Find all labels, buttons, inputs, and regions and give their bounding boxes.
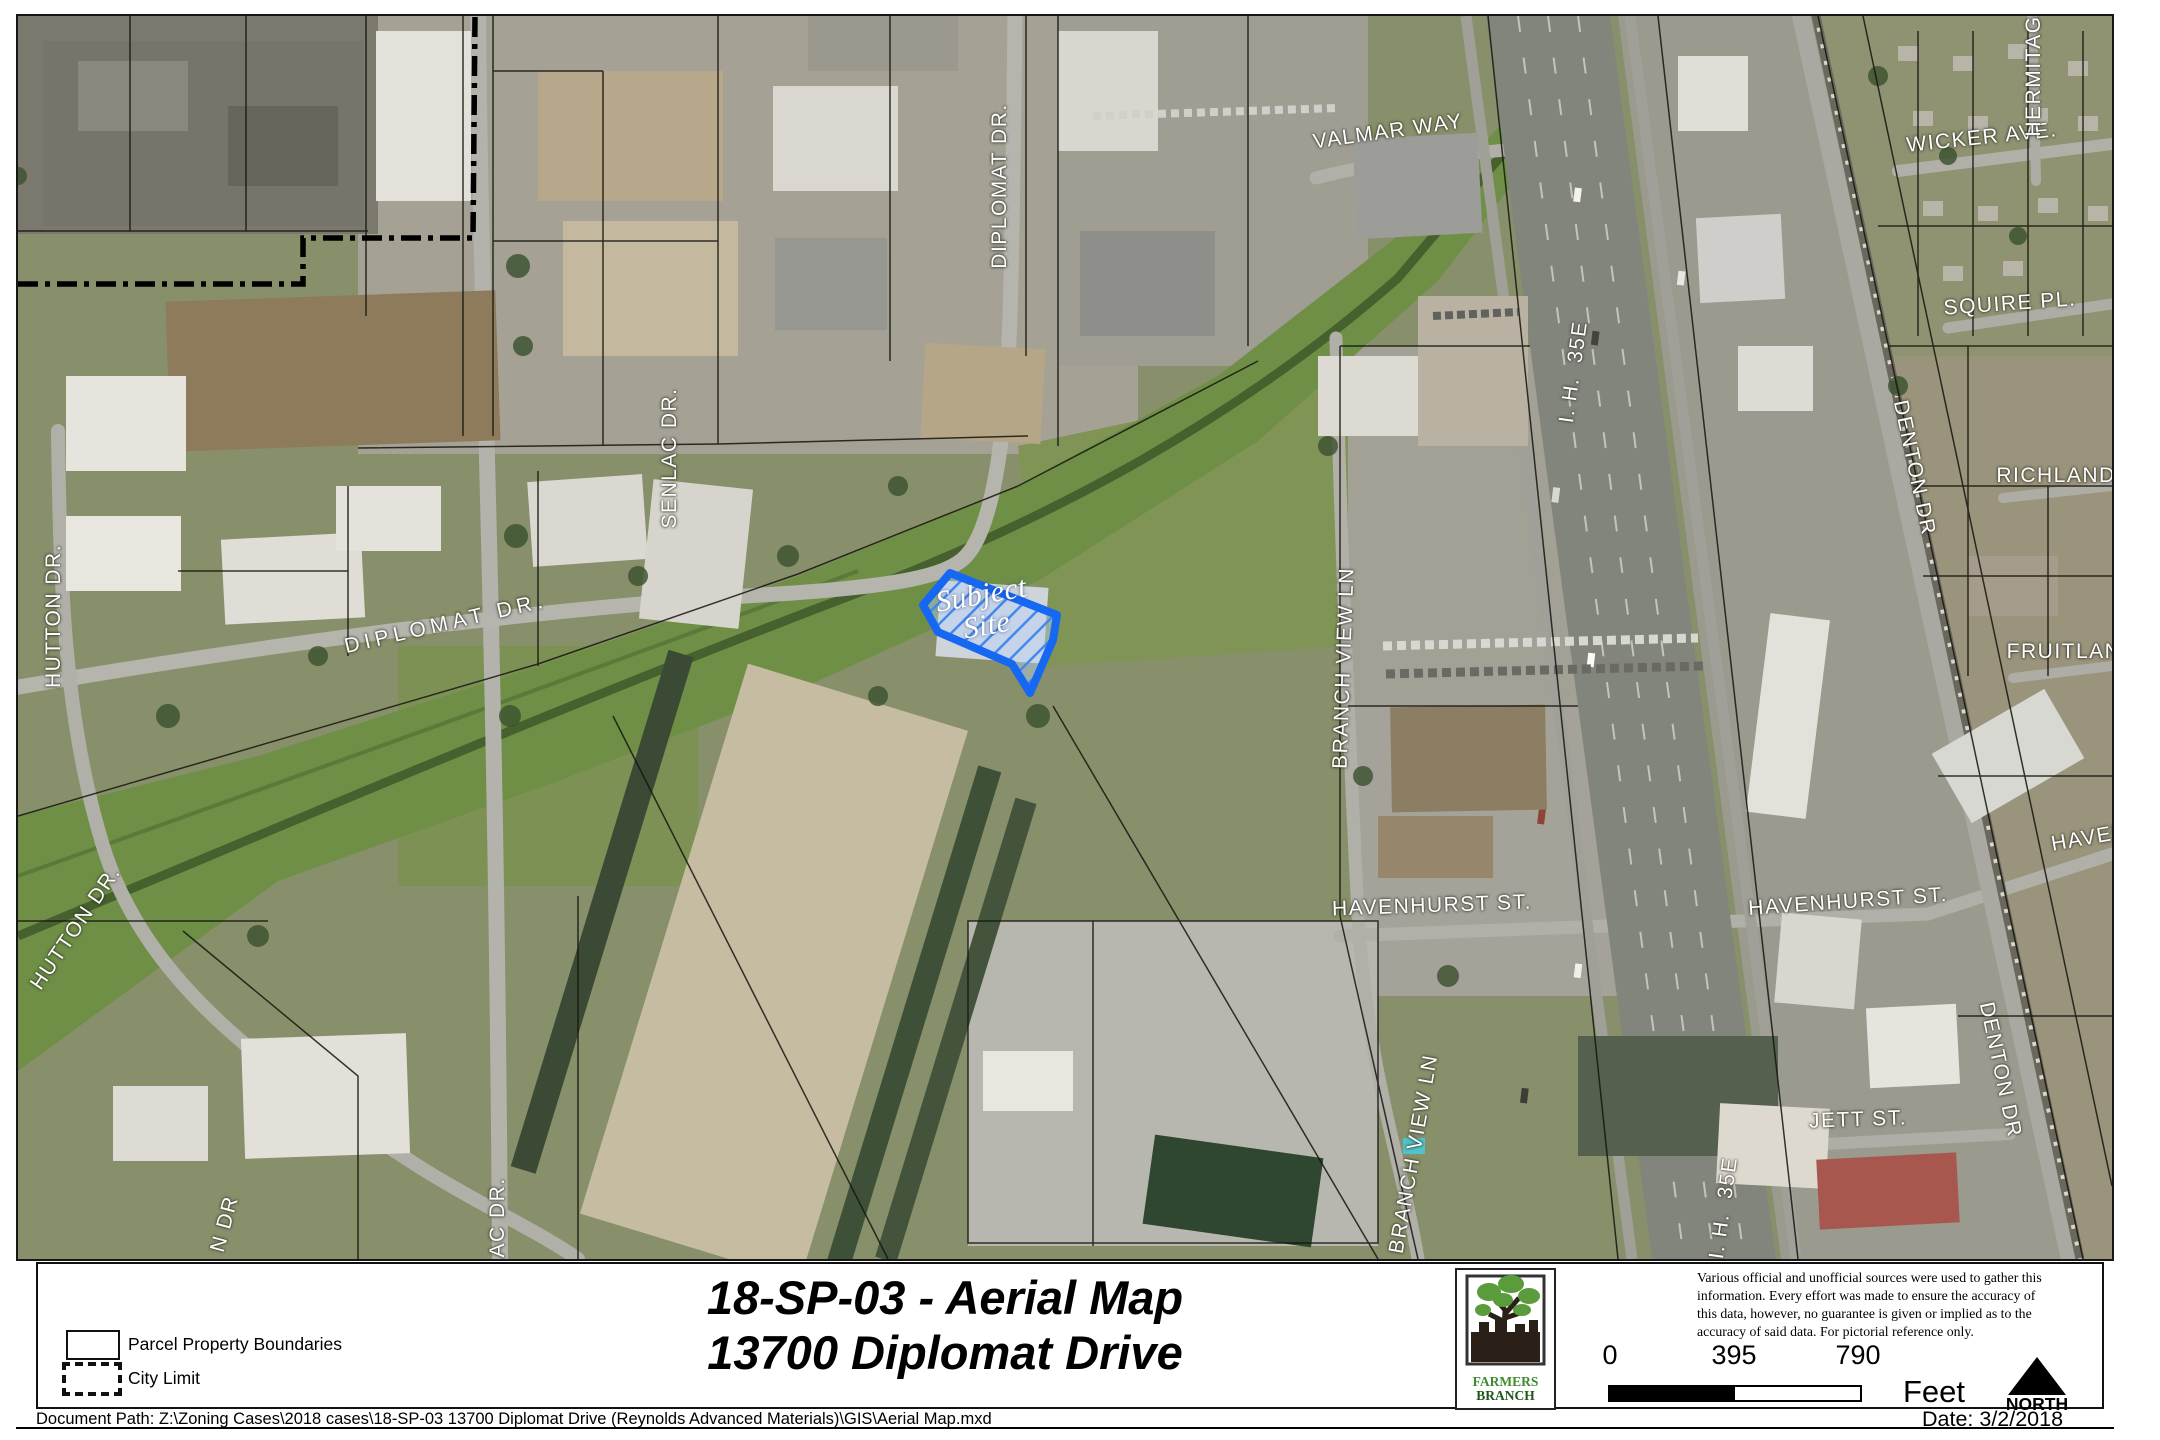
scale-tick-395: 395	[1704, 1340, 1764, 1371]
street-label: BRANCH VIEW LN	[1328, 567, 1359, 770]
street-label: SENLAC DR.	[658, 387, 682, 528]
farmers-branch-logo: FARMERS BRANCH	[1455, 1268, 1556, 1410]
logo-text-branch: BRANCH	[1457, 1389, 1554, 1403]
aerial-map-canvas: HUTTON DR.HUTTON DR.N DRSENLAC DR.LAC DR…	[16, 14, 2114, 1261]
street-label: JETT ST.	[1809, 1106, 1908, 1133]
map-document-page: HUTTON DR.HUTTON DR.N DRSENLAC DR.LAC DR…	[0, 0, 2160, 1440]
bottom-rule	[16, 1427, 2114, 1429]
city-limit-swatch	[62, 1362, 122, 1396]
scale-tick-0: 0	[1580, 1340, 1640, 1371]
parcel-boundaries-swatch	[66, 1330, 120, 1360]
legend-parcel-label: Parcel Property Boundaries	[128, 1334, 342, 1355]
map-title: 18-SP-03 - Aerial Map 13700 Diplomat Dri…	[540, 1270, 1350, 1381]
street-label: I. H. 35E	[1705, 1156, 1743, 1261]
street-label: DIPLOMAT DR.	[342, 589, 550, 659]
legend-city-limit-label: City Limit	[128, 1368, 200, 1389]
street-label: HAVENHURST ST.	[1747, 883, 1948, 921]
street-label: FRUITLAN	[2007, 640, 2114, 664]
street-label: HUTTON DR.	[42, 544, 66, 688]
street-label: DENTON DR	[1974, 1000, 2026, 1140]
street-label: HUTTON DR.	[26, 862, 126, 995]
scale-tick-790: 790	[1828, 1340, 1888, 1371]
street-label: HAVENHURST ST.	[1332, 891, 1533, 922]
subject-site-label: Subject Site	[910, 567, 1059, 653]
map-title-line2: 13700 Diplomat Drive	[540, 1325, 1350, 1380]
street-label: HAVEN	[2049, 819, 2114, 856]
scale-bar	[1608, 1385, 1862, 1402]
street-labels-layer: HUTTON DR.HUTTON DR.N DRSENLAC DR.LAC DR…	[18, 16, 2112, 1259]
street-label: I. H. 35E	[1555, 320, 1593, 425]
disclaimer-text: Various official and unofficial sources …	[1697, 1269, 2059, 1341]
street-label: RICHLAND	[1996, 464, 2114, 488]
scale-bar-filled-half	[1610, 1387, 1735, 1400]
street-label: DIPLOMAT DR.	[988, 103, 1012, 268]
street-label: DENTON DR	[1888, 398, 1940, 538]
logo-text-farmers: FARMERS	[1457, 1375, 1554, 1389]
scale-unit-label: Feet	[1903, 1374, 1965, 1410]
street-label: BRANCH VIEW LN	[1385, 1053, 1444, 1256]
map-title-line1: 18-SP-03 - Aerial Map	[540, 1270, 1350, 1325]
street-label: VALMAR WAY	[1311, 110, 1464, 155]
north-arrow-icon	[2008, 1357, 2066, 1395]
street-label: HERMITAG	[2022, 15, 2046, 136]
street-label: LAC DR.	[486, 1177, 510, 1261]
tree-city-icon	[1459, 1270, 1552, 1370]
street-label: SQUIRE PL.	[1943, 287, 2077, 320]
street-label: N DR	[206, 1193, 244, 1255]
